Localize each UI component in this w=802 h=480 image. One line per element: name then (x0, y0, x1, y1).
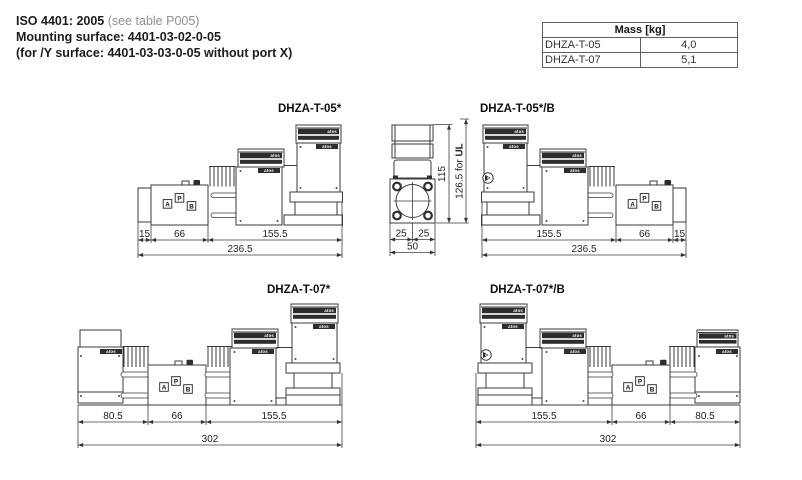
mass-row-value: 4,0 (640, 38, 738, 53)
atos-logo: atos (327, 129, 337, 134)
y-surface-line: (for /Y surface: 4401-03-03-0-05 without… (16, 45, 292, 61)
dim-total: 236.5 (227, 244, 252, 255)
dim-total: 302 (600, 434, 617, 445)
port-label-p: P (174, 378, 179, 385)
table-row: DHZA-T-05 4,0 (543, 38, 738, 53)
port-label-p: P (642, 195, 647, 202)
port-label-a: A (626, 384, 631, 391)
atos-logo: atos (322, 144, 332, 149)
dim-value: 66 (171, 411, 183, 422)
atos-logo: atos (572, 333, 582, 338)
atos-logo: atos (513, 308, 523, 313)
drawing-title-dhza-t-07: DHZA-T-07* (267, 284, 330, 296)
drawing-title-dhza-t-07-b: DHZA-T-07*/B (490, 284, 565, 296)
mounting-surface-line: Mounting surface: 4401-03-02-0-05 (16, 29, 292, 45)
port-label-b: B (186, 386, 191, 393)
iso-line: ISO 4401: 2005 (see table P005) (16, 13, 292, 29)
atos-logo: atos (509, 144, 519, 149)
drawing-dhza-t-07-side-view: atos atos atos atos atos A P B 80.5 66 1… (72, 300, 348, 450)
side-connector-symbol (481, 350, 491, 360)
atos-logo: atos (572, 153, 582, 158)
dim-value: 80.5 (103, 411, 123, 422)
dim-value: 155.5 (261, 411, 286, 422)
table-row: DHZA-T-07 5,1 (543, 53, 738, 68)
dim-value: 155.5 (531, 411, 556, 422)
port-label-b: B (654, 203, 659, 210)
drawing-title-dhza-t-05: DHZA-T-05* (278, 103, 341, 115)
atos-logo: atos (270, 153, 280, 158)
body-plug (650, 181, 657, 185)
atos-logo: atos (324, 308, 334, 313)
port-label-p: P (638, 378, 643, 385)
port-label-p: P (177, 195, 182, 202)
atos-logo: atos (508, 324, 518, 329)
dim-value: 155.5 (262, 229, 287, 240)
drawing-title-dhza-t-05-b: DHZA-T-05*/B (480, 103, 555, 115)
mass-row-value: 5,1 (640, 53, 738, 68)
atos-logo: atos (570, 168, 580, 173)
dim-value: 80.5 (695, 411, 715, 422)
body-knob (665, 180, 672, 185)
dim-height: 115 (437, 166, 448, 182)
body-knob (660, 360, 667, 365)
atos-logo: atos (514, 129, 524, 134)
body-plug (646, 361, 653, 365)
dim-value: 15 (139, 229, 151, 240)
atos-logo: atos (264, 333, 274, 338)
body-knob (187, 360, 194, 365)
atos-logo: atos (106, 349, 116, 354)
port-label-a: A (162, 384, 167, 391)
cooling-fins (123, 347, 149, 368)
drawing-dhza-t-05b-side-view: atos atos atos atos A P B 155.5 66 15 23… (476, 118, 692, 258)
atos-logo: atos (258, 349, 268, 354)
header-text-block: ISO 4401: 2005 (see table P005) Mounting… (16, 13, 292, 61)
port-label-a: A (165, 201, 170, 208)
mass-table: Mass [kg] DHZA-T-05 4,0 DHZA-T-07 5,1 (542, 22, 738, 68)
cooling-fins (209, 167, 236, 187)
atos-logo: atos (264, 168, 274, 173)
mass-row-model: DHZA-T-05 (543, 38, 641, 53)
dim-value: 66 (174, 229, 186, 240)
atos-logo: atos (570, 349, 580, 354)
atos-logo: atos (722, 349, 732, 354)
dim-total: 302 (202, 434, 219, 445)
body-plug (175, 361, 182, 365)
dim-height-ul: 126.5 for UL (455, 143, 466, 199)
body-plug (182, 181, 189, 185)
valve-outline-shapes (138, 125, 343, 225)
dim-value: 25 (396, 229, 408, 240)
iso-note: (see table P005) (104, 14, 199, 28)
valve-outline-shapes (78, 304, 342, 405)
drawing-end-view: 25 25 50 115 126.5 for UL (386, 108, 474, 260)
dim-value: 155.5 (536, 229, 561, 240)
dim-value: 15 (674, 229, 686, 240)
dim-value: 66 (635, 411, 647, 422)
dim-total: 236.5 (571, 244, 596, 255)
mass-table-title: Mass [kg] (543, 23, 738, 38)
body-knob (194, 180, 201, 185)
port-label-b: B (189, 203, 194, 210)
dim-value: 25 (418, 229, 430, 240)
drawing-dhza-t-07b-side-view: atos atos atos atos atos atos A P B 155.… (470, 300, 746, 450)
port-label-a: A (630, 201, 635, 208)
dim-total: 50 (407, 242, 419, 253)
drawing-dhza-t-05-side-view: atos atos atos atos A P B 15 66 155.5 23… (132, 118, 346, 258)
dim-value: 66 (639, 229, 651, 240)
iso-standard: ISO 4401: 2005 (16, 14, 104, 28)
mass-row-model: DHZA-T-07 (543, 53, 641, 68)
side-connector-symbol (483, 173, 493, 183)
port-label-b: B (650, 386, 655, 393)
atos-logo: atos (724, 334, 734, 339)
cooling-fins (207, 347, 232, 368)
atos-logo: atos (319, 324, 329, 329)
